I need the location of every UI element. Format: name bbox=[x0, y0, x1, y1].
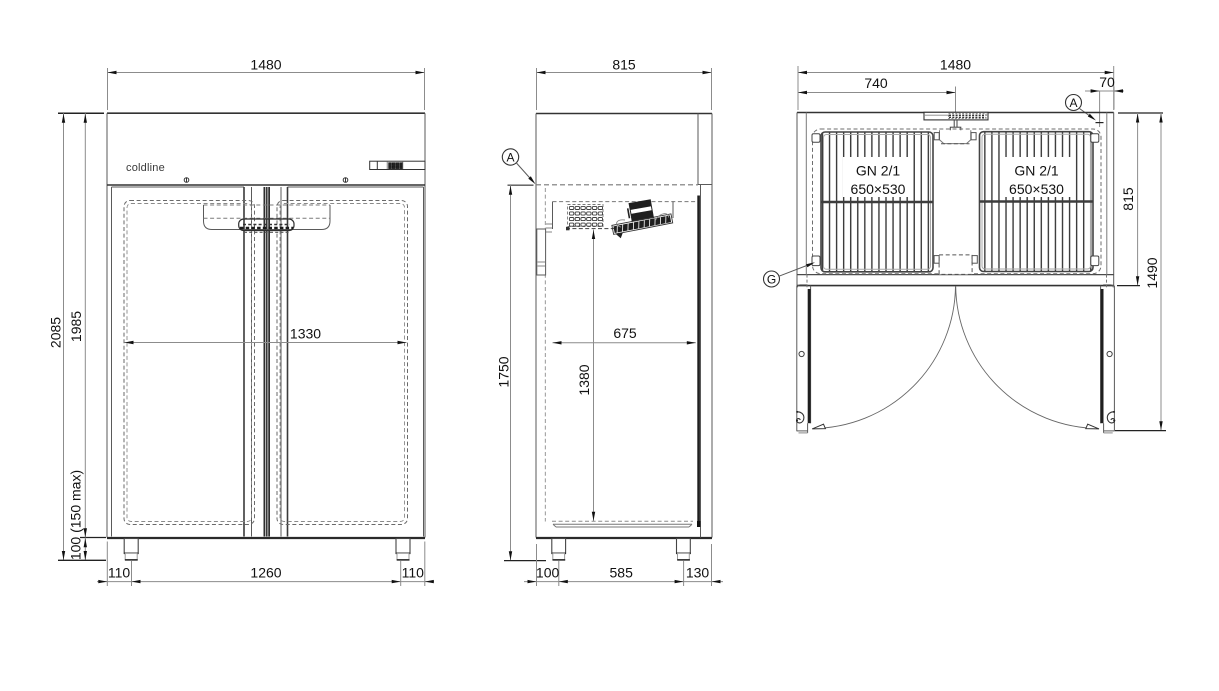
svg-text:1985: 1985 bbox=[68, 311, 84, 342]
svg-text:130: 130 bbox=[686, 565, 710, 581]
svg-text:110: 110 bbox=[108, 565, 131, 581]
svg-text:650×530: 650×530 bbox=[851, 181, 906, 197]
svg-text:740: 740 bbox=[864, 75, 888, 91]
svg-text:675: 675 bbox=[613, 325, 637, 341]
svg-text:2085: 2085 bbox=[48, 317, 64, 348]
svg-text:815: 815 bbox=[1120, 187, 1136, 211]
svg-text:70: 70 bbox=[1099, 74, 1115, 90]
svg-text:GN 2/1: GN 2/1 bbox=[1014, 163, 1059, 179]
svg-text:G: G bbox=[767, 273, 776, 287]
svg-text:110: 110 bbox=[402, 565, 425, 581]
svg-text:1750: 1750 bbox=[496, 356, 512, 387]
svg-text:A: A bbox=[1069, 96, 1077, 110]
svg-text:585: 585 bbox=[610, 565, 634, 581]
svg-text:GN 2/1: GN 2/1 bbox=[856, 163, 901, 179]
svg-text:1380: 1380 bbox=[576, 364, 592, 395]
svg-text:1330: 1330 bbox=[290, 326, 321, 342]
svg-text:1480: 1480 bbox=[250, 57, 281, 73]
svg-text:coldline: coldline bbox=[126, 162, 165, 174]
svg-text:A: A bbox=[506, 151, 514, 165]
svg-text:1260: 1260 bbox=[250, 565, 281, 581]
svg-text:100 (150 max): 100 (150 max) bbox=[68, 470, 84, 560]
svg-text:100: 100 bbox=[536, 565, 560, 581]
svg-text:815: 815 bbox=[612, 57, 636, 73]
svg-text:650×530: 650×530 bbox=[1009, 181, 1064, 197]
svg-text:1490: 1490 bbox=[1144, 257, 1160, 288]
svg-text:1480: 1480 bbox=[940, 57, 971, 73]
